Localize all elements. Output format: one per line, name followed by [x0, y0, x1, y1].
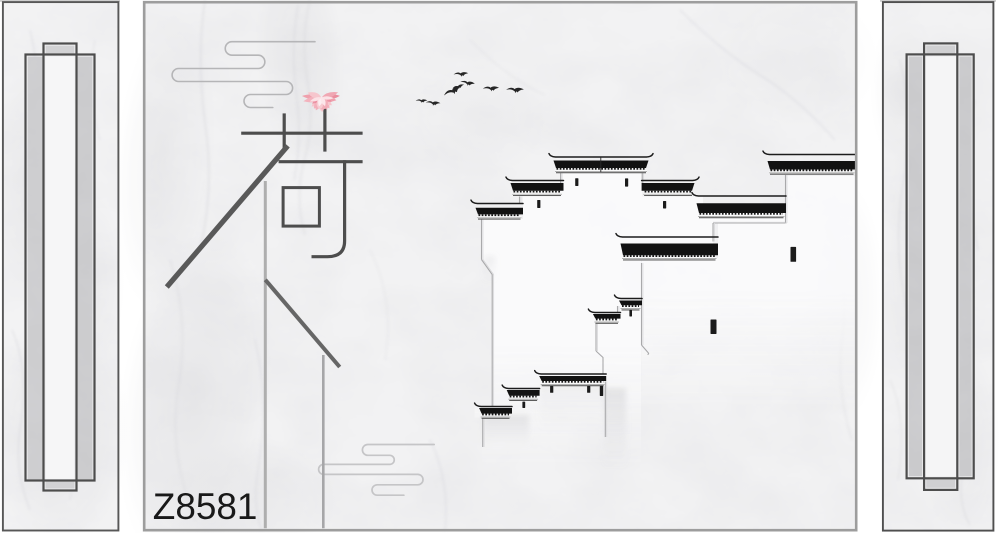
svg-text:Z8581: Z8581	[153, 486, 258, 527]
